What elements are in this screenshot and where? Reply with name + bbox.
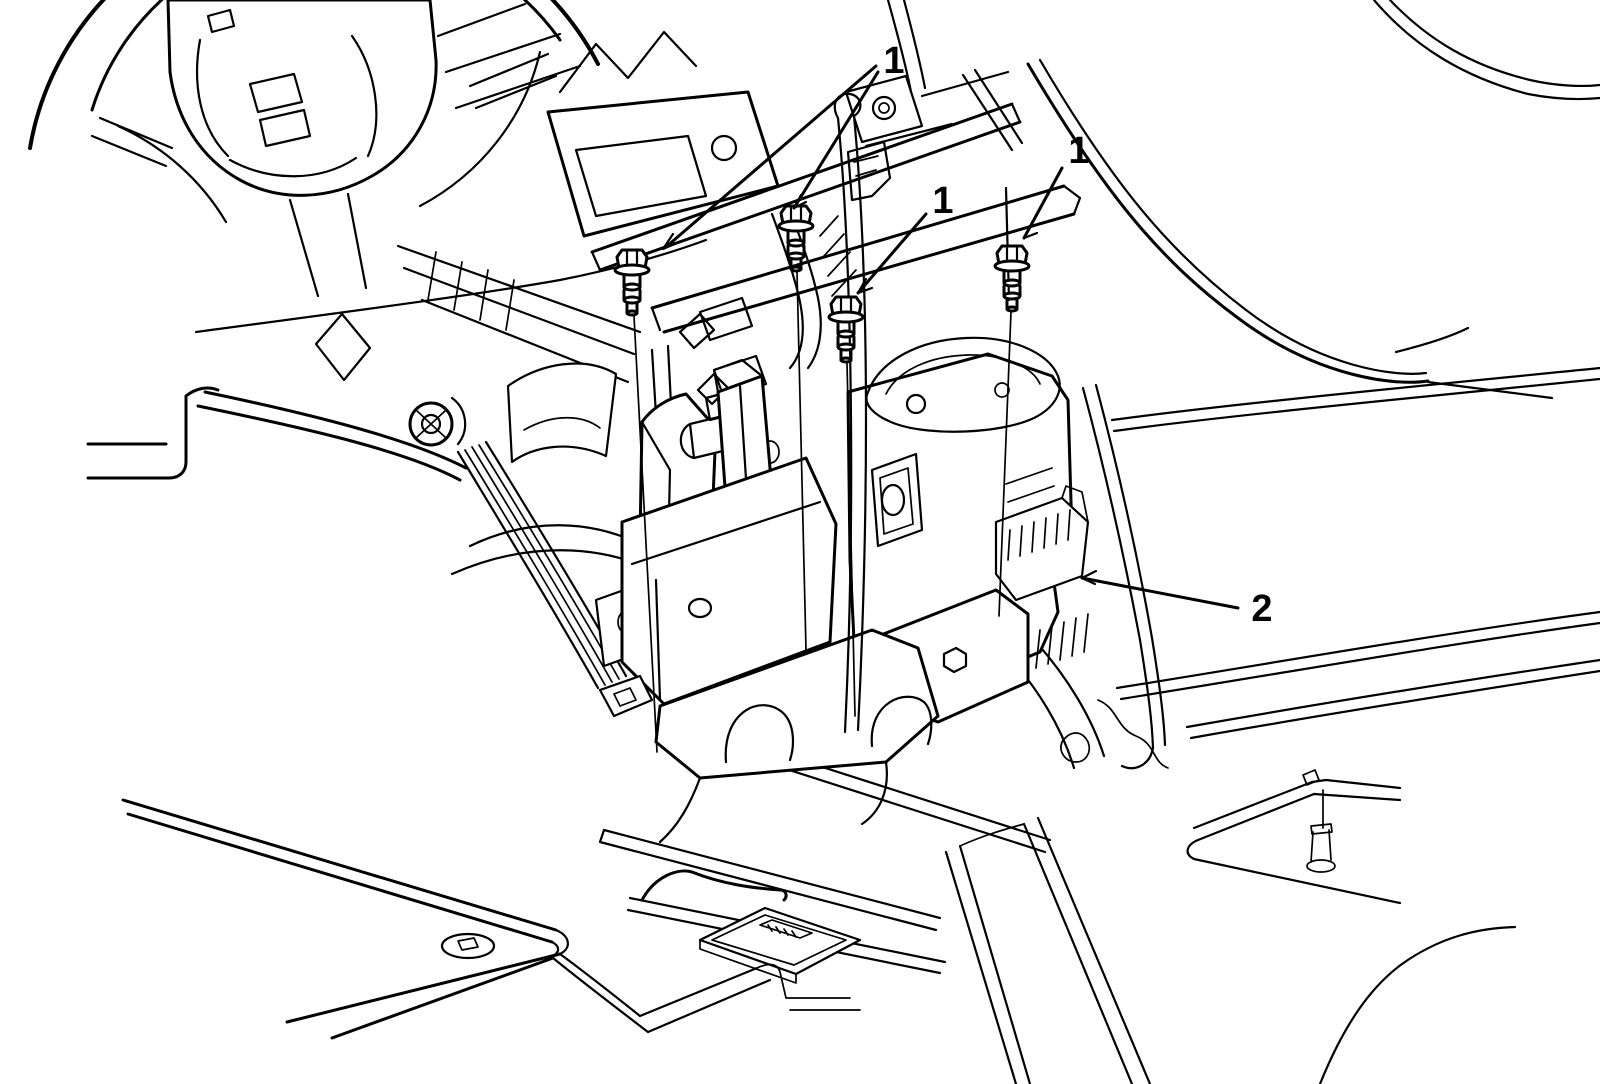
floor-grommet: [442, 934, 494, 958]
shifter-assembly: [596, 338, 1088, 842]
dash-diamond-cutout: [316, 314, 370, 380]
callout-1-mid-label: 1: [932, 180, 953, 222]
connector-stub: [680, 298, 752, 348]
callout-2-label: 2: [1251, 588, 1272, 630]
technical-illustration: 1 1 1 2: [0, 0, 1600, 1084]
leader-line: [858, 214, 926, 293]
seat-stud: [1311, 790, 1332, 862]
steering-wheel-hub: [168, 0, 436, 195]
dash-display-screen: [576, 136, 706, 216]
mounting-bolt-3: [829, 297, 863, 362]
dash-display-bezel: [548, 92, 778, 236]
mounting-bolt-1: [615, 250, 649, 315]
steering-wheel: [30, 0, 598, 296]
callout-1-top-label: 1: [883, 40, 904, 82]
leader-line: [1082, 578, 1238, 608]
callout-1-right-label: 1: [1068, 130, 1089, 172]
illustration-page: 1 1 1 2: [0, 0, 1600, 1084]
mounting-bolt-4: [995, 246, 1029, 311]
